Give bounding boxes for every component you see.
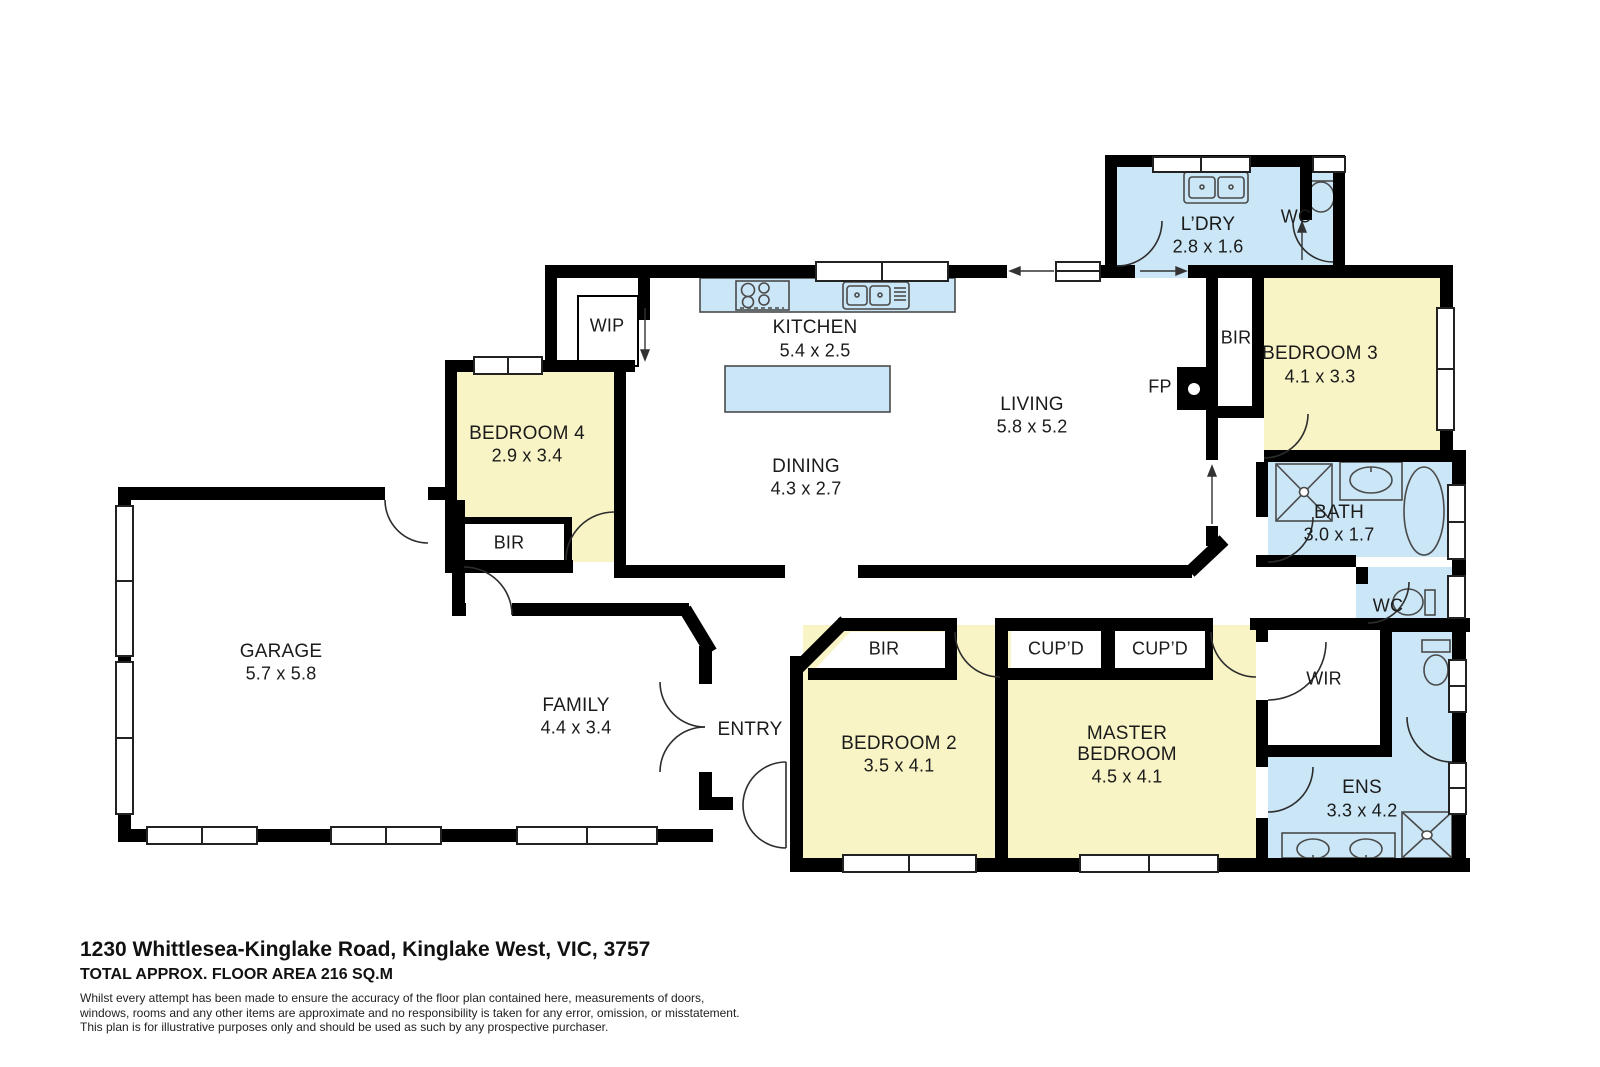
room-dims-master: 4.5 x 4.1 <box>1092 767 1163 788</box>
room-label-living: LIVING <box>1000 394 1064 416</box>
kitchen-counter <box>700 278 955 312</box>
room-dims-bedroom2: 3.5 x 4.1 <box>864 756 935 777</box>
room-label-master: MASTER BEDROOM <box>1068 723 1186 765</box>
total-floor-area: TOTAL APPROX. FLOOR AREA 216 SQ.M <box>80 966 740 984</box>
room-label-dining: DINING <box>772 456 840 478</box>
disclaimer-line: This plan is for illustrative purposes o… <box>80 1020 740 1035</box>
fireplace-label: FP <box>1148 377 1171 398</box>
closet-label-wip: WIP <box>590 316 625 337</box>
closet-label-bir-bedroom4: BIR <box>494 533 525 554</box>
closet-label-cupd-1: CUP’D <box>1028 639 1084 660</box>
room-label-kitchen: KITCHEN <box>773 317 858 339</box>
room-label-bath: BATH <box>1314 502 1364 524</box>
closet-label-bir-bedroom3: BIR <box>1221 328 1252 349</box>
room-dims-bedroom3: 4.1 x 3.3 <box>1285 367 1356 388</box>
property-address: 1230 Whittlesea-Kinglake Road, Kinglake … <box>80 938 740 962</box>
room-dims-living: 5.8 x 5.2 <box>997 417 1068 438</box>
room-label-garage: GARAGE <box>240 641 323 663</box>
room-dims-dining: 4.3 x 2.7 <box>771 479 842 500</box>
footer-text-block: 1230 Whittlesea-Kinglake Road, Kinglake … <box>80 938 740 1035</box>
room-dims-garage: 5.7 x 5.8 <box>246 664 317 685</box>
room-dims-kitchen: 5.4 x 2.5 <box>780 341 851 362</box>
room-dims-ens: 3.3 x 4.2 <box>1327 801 1398 822</box>
room-label-bedroom4: BEDROOM 4 <box>469 423 585 445</box>
room-label-ens: ENS <box>1342 777 1382 799</box>
room-label-wc-mid: WC <box>1373 596 1403 617</box>
room-label-family: FAMILY <box>542 695 609 717</box>
room-label-wir: WIR <box>1306 669 1342 690</box>
room-dims-laundry: 2.8 x 1.6 <box>1173 237 1244 258</box>
room-label-bedroom2: BEDROOM 2 <box>841 733 957 755</box>
disclaimer-line: windows, rooms and any other items are a… <box>80 1006 740 1021</box>
disclaimer-line: Whilst every attempt has been made to en… <box>80 991 740 1006</box>
room-label-entry: ENTRY <box>717 719 782 741</box>
room-label-wc-top: WC <box>1281 207 1311 228</box>
room-dims-bath: 3.0 x 1.7 <box>1304 525 1375 546</box>
room-dims-family: 4.4 x 3.4 <box>541 718 612 739</box>
room-dims-bedroom4: 2.9 x 3.4 <box>492 446 563 467</box>
closet-label-bir-bedroom2: BIR <box>869 639 900 660</box>
closet-label-cupd-2: CUP’D <box>1132 639 1188 660</box>
island-bench <box>725 366 890 412</box>
room-label-laundry: L’DRY <box>1181 214 1236 236</box>
room-label-bedroom3: BEDROOM 3 <box>1262 343 1378 365</box>
floorplan-canvas: L’DRY 2.8 x 1.6 WC BEDROOM 3 4.1 x 3.3 B… <box>0 0 1600 1067</box>
